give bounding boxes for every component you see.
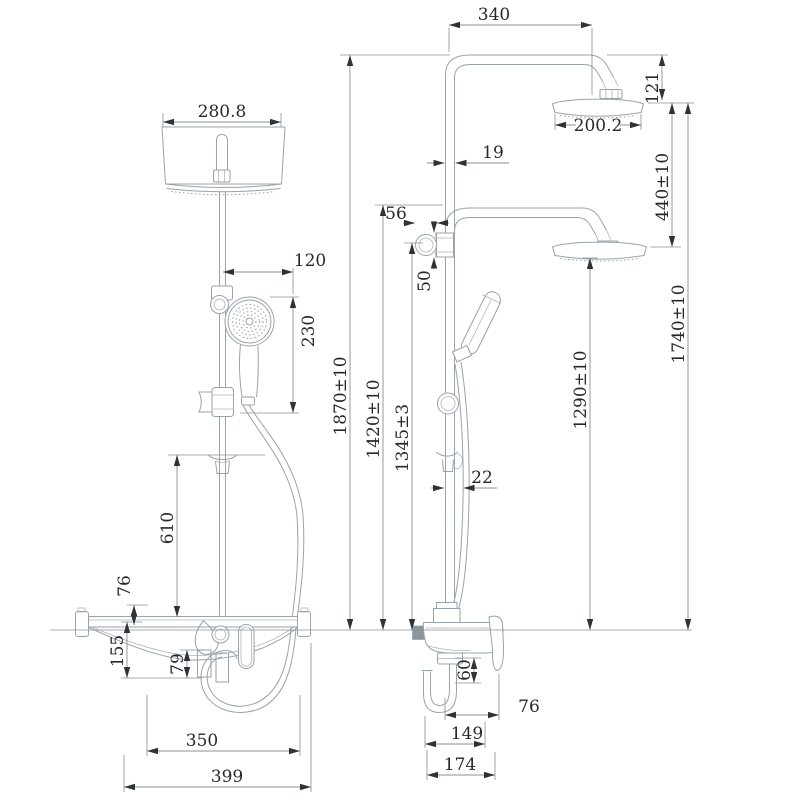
dimension-lower-head-height: 1290±10 <box>571 258 591 630</box>
dimension-shelf-depth-front: 155 <box>108 622 128 678</box>
dim-label-200-2: 200.2 <box>574 116 623 136</box>
dim-label-340: 340 <box>478 5 510 25</box>
shelf-endcap-right <box>298 612 311 637</box>
dim-label-1290: 1290±10 <box>571 350 591 429</box>
dimension-shelf-mount-width: 350 <box>147 731 300 751</box>
dimension-head-adjust-range: 440±10 <box>653 103 673 247</box>
dimension-pipe-diameter: 19 <box>427 143 509 163</box>
dim-label-60: 60 <box>455 659 475 681</box>
wall-inlet-fitting <box>413 626 425 640</box>
mixer-side <box>413 603 504 713</box>
overhead-shower-front <box>162 127 285 195</box>
dim-label-19: 19 <box>482 143 504 163</box>
shelf-bar-front <box>86 617 300 628</box>
dimension-shelf-width: 399 <box>124 767 311 787</box>
dimension-bar-diameter: 22 <box>431 468 497 488</box>
arm-nut-upper <box>600 90 622 99</box>
dimension-body-depth: 149 <box>425 724 485 744</box>
dim-label-76-left: 76 <box>115 575 135 597</box>
riser-pipe-side <box>446 88 455 613</box>
overhead-shower-side-lower <box>553 242 647 261</box>
dim-label-1345: 1345±3 <box>393 404 413 472</box>
dimension-bracket-offset: 56 <box>385 204 449 224</box>
mixer-mount-block <box>434 609 461 623</box>
dimension-lower-arm-height: 1420±10 <box>364 205 384 630</box>
dim-label-280-8: 280.8 <box>198 102 247 122</box>
dim-label-50: 50 <box>415 270 435 292</box>
dimension-hook-height: 610 <box>158 455 178 617</box>
dim-label-1870: 1870±10 <box>331 356 351 435</box>
dimension-handshower-offset: 120 <box>223 251 326 272</box>
dimension-bracket-height: 1345±3 <box>393 243 413 630</box>
dim-label-440: 440±10 <box>653 153 673 221</box>
front-view <box>76 127 311 712</box>
dim-label-350: 350 <box>186 731 218 751</box>
dim-label-79: 79 <box>168 653 188 675</box>
shower-system-dimensional-drawing: 280.8 120 230 1870±10 1420±10 1345±3 610 <box>0 0 800 800</box>
technical-drawing-page: 280.8 120 230 1870±10 1420±10 1345±3 610 <box>0 0 800 800</box>
dim-label-230: 230 <box>299 315 319 347</box>
dim-label-610: 610 <box>158 512 178 544</box>
slider-clamp-front <box>199 388 234 417</box>
dim-label-76-right: 76 <box>518 697 540 717</box>
dimension-head-diameter-side: 200.2 <box>555 116 641 136</box>
dimensions: 280.8 120 230 1870±10 1420±10 1345±3 610 <box>108 5 689 787</box>
dimension-overall-depth: 174 <box>427 755 495 775</box>
dim-label-1740: 1740±10 <box>669 284 689 363</box>
dim-label-22: 22 <box>471 468 493 488</box>
dimension-handshower-drop: 230 <box>293 297 319 413</box>
dim-label-56: 56 <box>385 204 407 224</box>
dim-label-121: 121 <box>643 72 663 104</box>
dimension-spout-height-front: 79 <box>168 650 188 678</box>
shower-stem-front <box>217 135 228 171</box>
dimension-hose-loop-height: 60 <box>455 658 475 683</box>
hose-hook-side <box>437 452 463 472</box>
dim-label-399: 399 <box>211 767 243 787</box>
hand-shower-handle-front <box>239 345 258 398</box>
wall-bracket-side <box>416 233 455 257</box>
slider-knob-side <box>438 393 459 414</box>
dimension-arm-reach: 340 <box>449 5 592 25</box>
hand-shower-connector-side <box>453 346 472 363</box>
stem-nut-front <box>214 170 231 182</box>
dim-label-149: 149 <box>451 724 483 744</box>
shelf-endcap-left <box>76 612 89 637</box>
dim-label-174: 174 <box>444 755 476 775</box>
dimension-hose-to-lever: 76 <box>445 697 540 717</box>
hose-hook-front <box>209 455 237 474</box>
dim-label-155: 155 <box>108 635 128 667</box>
upper-shower-arm-side <box>446 55 623 103</box>
dimension-total-height: 1870±10 <box>331 55 351 630</box>
temperature-knob-front <box>212 626 229 643</box>
dimension-head-drop: 121 <box>643 55 663 104</box>
hand-shower-side <box>453 292 502 362</box>
dimension-head-width-front: 280.8 <box>163 102 281 122</box>
hand-shower-connector-front <box>242 397 255 405</box>
side-view <box>413 55 647 713</box>
dim-label-120: 120 <box>294 251 326 271</box>
dimension-bracket-block-height: 50 <box>415 221 435 292</box>
dim-label-1420: 1420±10 <box>364 379 384 458</box>
